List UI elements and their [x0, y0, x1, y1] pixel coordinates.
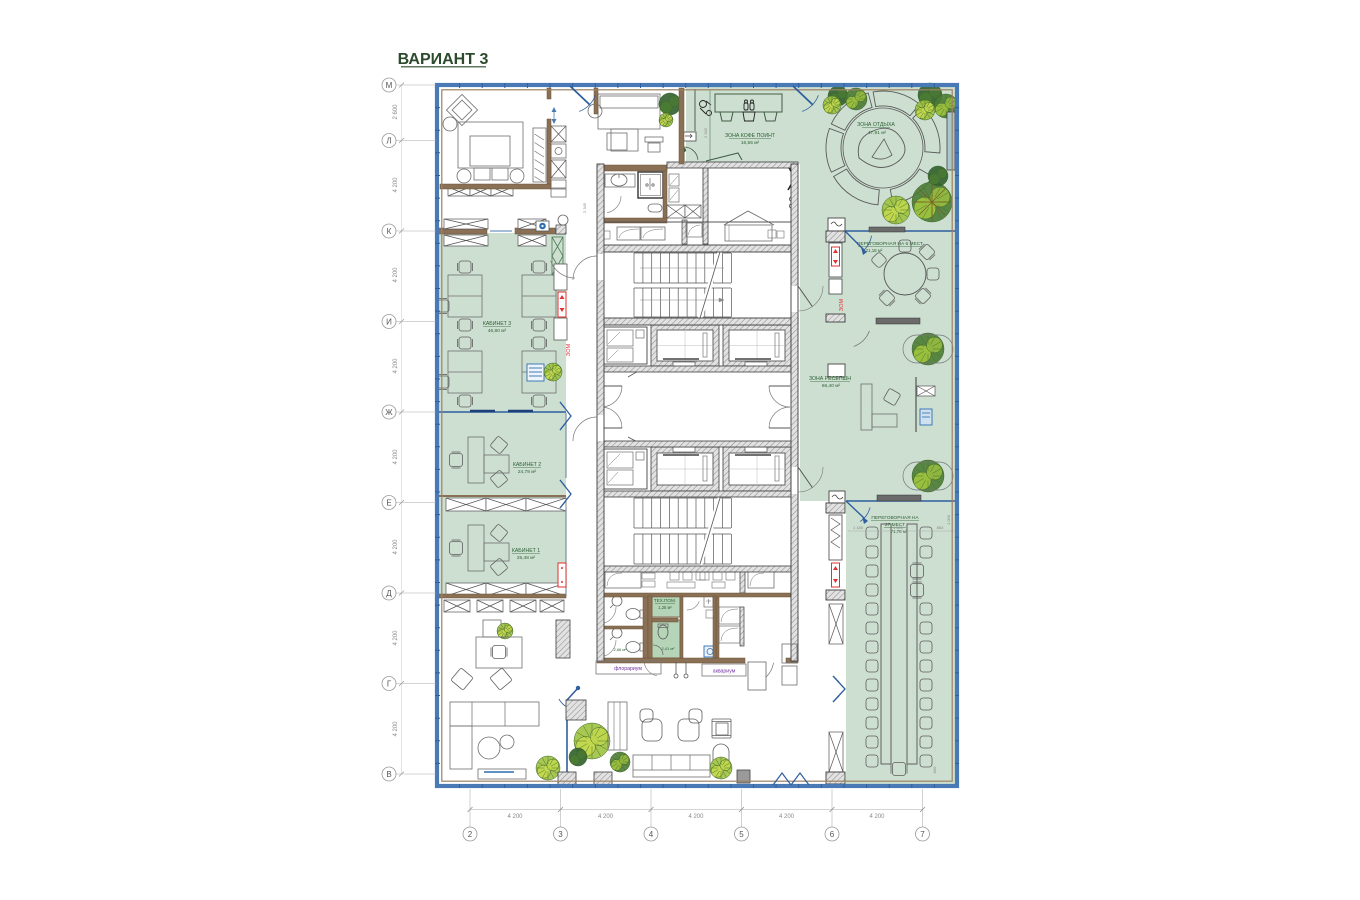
svg-text:ЗОНА РЕСЕПШН: ЗОНА РЕСЕПШН [809, 376, 851, 382]
svg-text:Г: Г [387, 679, 392, 688]
svg-text:16,55 м²: 16,55 м² [741, 140, 760, 146]
svg-text:4 200: 4 200 [393, 721, 399, 737]
svg-text:21,18 м²: 21,18 м² [866, 248, 883, 253]
svg-text:4 200: 4 200 [393, 630, 399, 646]
svg-text:ЗОНА КОФЕ ПОИНТ: ЗОНА КОФЕ ПОИНТ [725, 133, 776, 139]
svg-text:В: В [386, 770, 391, 779]
svg-text:ПЕРЕГОВОРНАЯ НА: ПЕРЕГОВОРНАЯ НА [871, 515, 919, 521]
svg-text:ВАРИАНТ 3: ВАРИАНТ 3 [398, 51, 489, 68]
svg-text:4 200: 4 200 [393, 267, 399, 283]
svg-text:И: И [386, 317, 392, 326]
svg-text:ЗОМ: ЗОМ [566, 344, 572, 357]
svg-text:ПЕРЕГОВОРНАЯ НА 6 МЕСТ: ПЕРЕГОВОРНАЯ НА 6 МЕСТ [857, 241, 923, 247]
svg-text:КАБИНЕТ 1: КАБИНЕТ 1 [512, 548, 540, 554]
svg-text:1,25 м²: 1,25 м² [658, 605, 672, 610]
svg-text:аквариум: аквариум [713, 669, 736, 675]
svg-text:Л: Л [386, 136, 391, 145]
svg-text:КАБИНЕТ 3: КАБИНЕТ 3 [483, 321, 511, 327]
svg-text:2,66 м²: 2,66 м² [614, 647, 628, 652]
svg-text:4 200: 4 200 [393, 177, 399, 193]
svg-text:4 200: 4 200 [393, 449, 399, 465]
svg-text:1 500: 1 500 [893, 525, 904, 530]
svg-text:66,40 м²: 66,40 м² [822, 383, 841, 389]
svg-text:4 200: 4 200 [598, 814, 614, 820]
svg-text:3: 3 [558, 830, 563, 839]
svg-text:М: М [386, 81, 393, 90]
svg-text:883: 883 [937, 525, 944, 530]
svg-text:4 200: 4 200 [869, 814, 885, 820]
svg-text:ЗОНА ОТДЫХА: ЗОНА ОТДЫХА [857, 122, 895, 128]
svg-text:4 200: 4 200 [688, 814, 704, 820]
svg-text:800: 800 [932, 766, 937, 773]
svg-text:24,78 м²: 24,78 м² [518, 469, 537, 475]
svg-text:2,41 м²: 2,41 м² [662, 646, 676, 651]
svg-text:2 600: 2 600 [393, 104, 399, 120]
svg-text:4 200: 4 200 [393, 358, 399, 374]
svg-text:4 200: 4 200 [393, 539, 399, 555]
svg-text:1 185: 1 185 [853, 525, 864, 530]
svg-text:Ж: Ж [385, 408, 393, 417]
svg-text:2: 2 [468, 830, 473, 839]
svg-text:7: 7 [920, 830, 925, 839]
svg-text:2 345: 2 345 [582, 202, 587, 213]
svg-text:6: 6 [830, 830, 835, 839]
svg-text:Д: Д [386, 589, 392, 598]
svg-text:4: 4 [649, 830, 654, 839]
svg-text:4 200: 4 200 [507, 814, 523, 820]
svg-text:1 000: 1 000 [946, 514, 951, 525]
svg-text:ТЕХ.ПОМ.: ТЕХ.ПОМ. [654, 598, 676, 603]
svg-text:5: 5 [739, 830, 744, 839]
svg-text:ЗОМ: ЗОМ [839, 299, 845, 312]
svg-text:46,80 м²: 46,80 м² [488, 328, 507, 334]
svg-text:Е: Е [386, 498, 391, 507]
svg-text:25,48 м²: 25,48 м² [517, 555, 536, 561]
svg-text:2 345: 2 345 [703, 127, 708, 138]
svg-text:К: К [387, 227, 392, 236]
svg-text:4 200: 4 200 [779, 814, 795, 820]
svg-text:КАБИНЕТ 2: КАБИНЕТ 2 [513, 462, 541, 468]
svg-text:флорариум: флорариум [614, 666, 642, 672]
svg-text:47,91 м²: 47,91 м² [868, 130, 887, 136]
